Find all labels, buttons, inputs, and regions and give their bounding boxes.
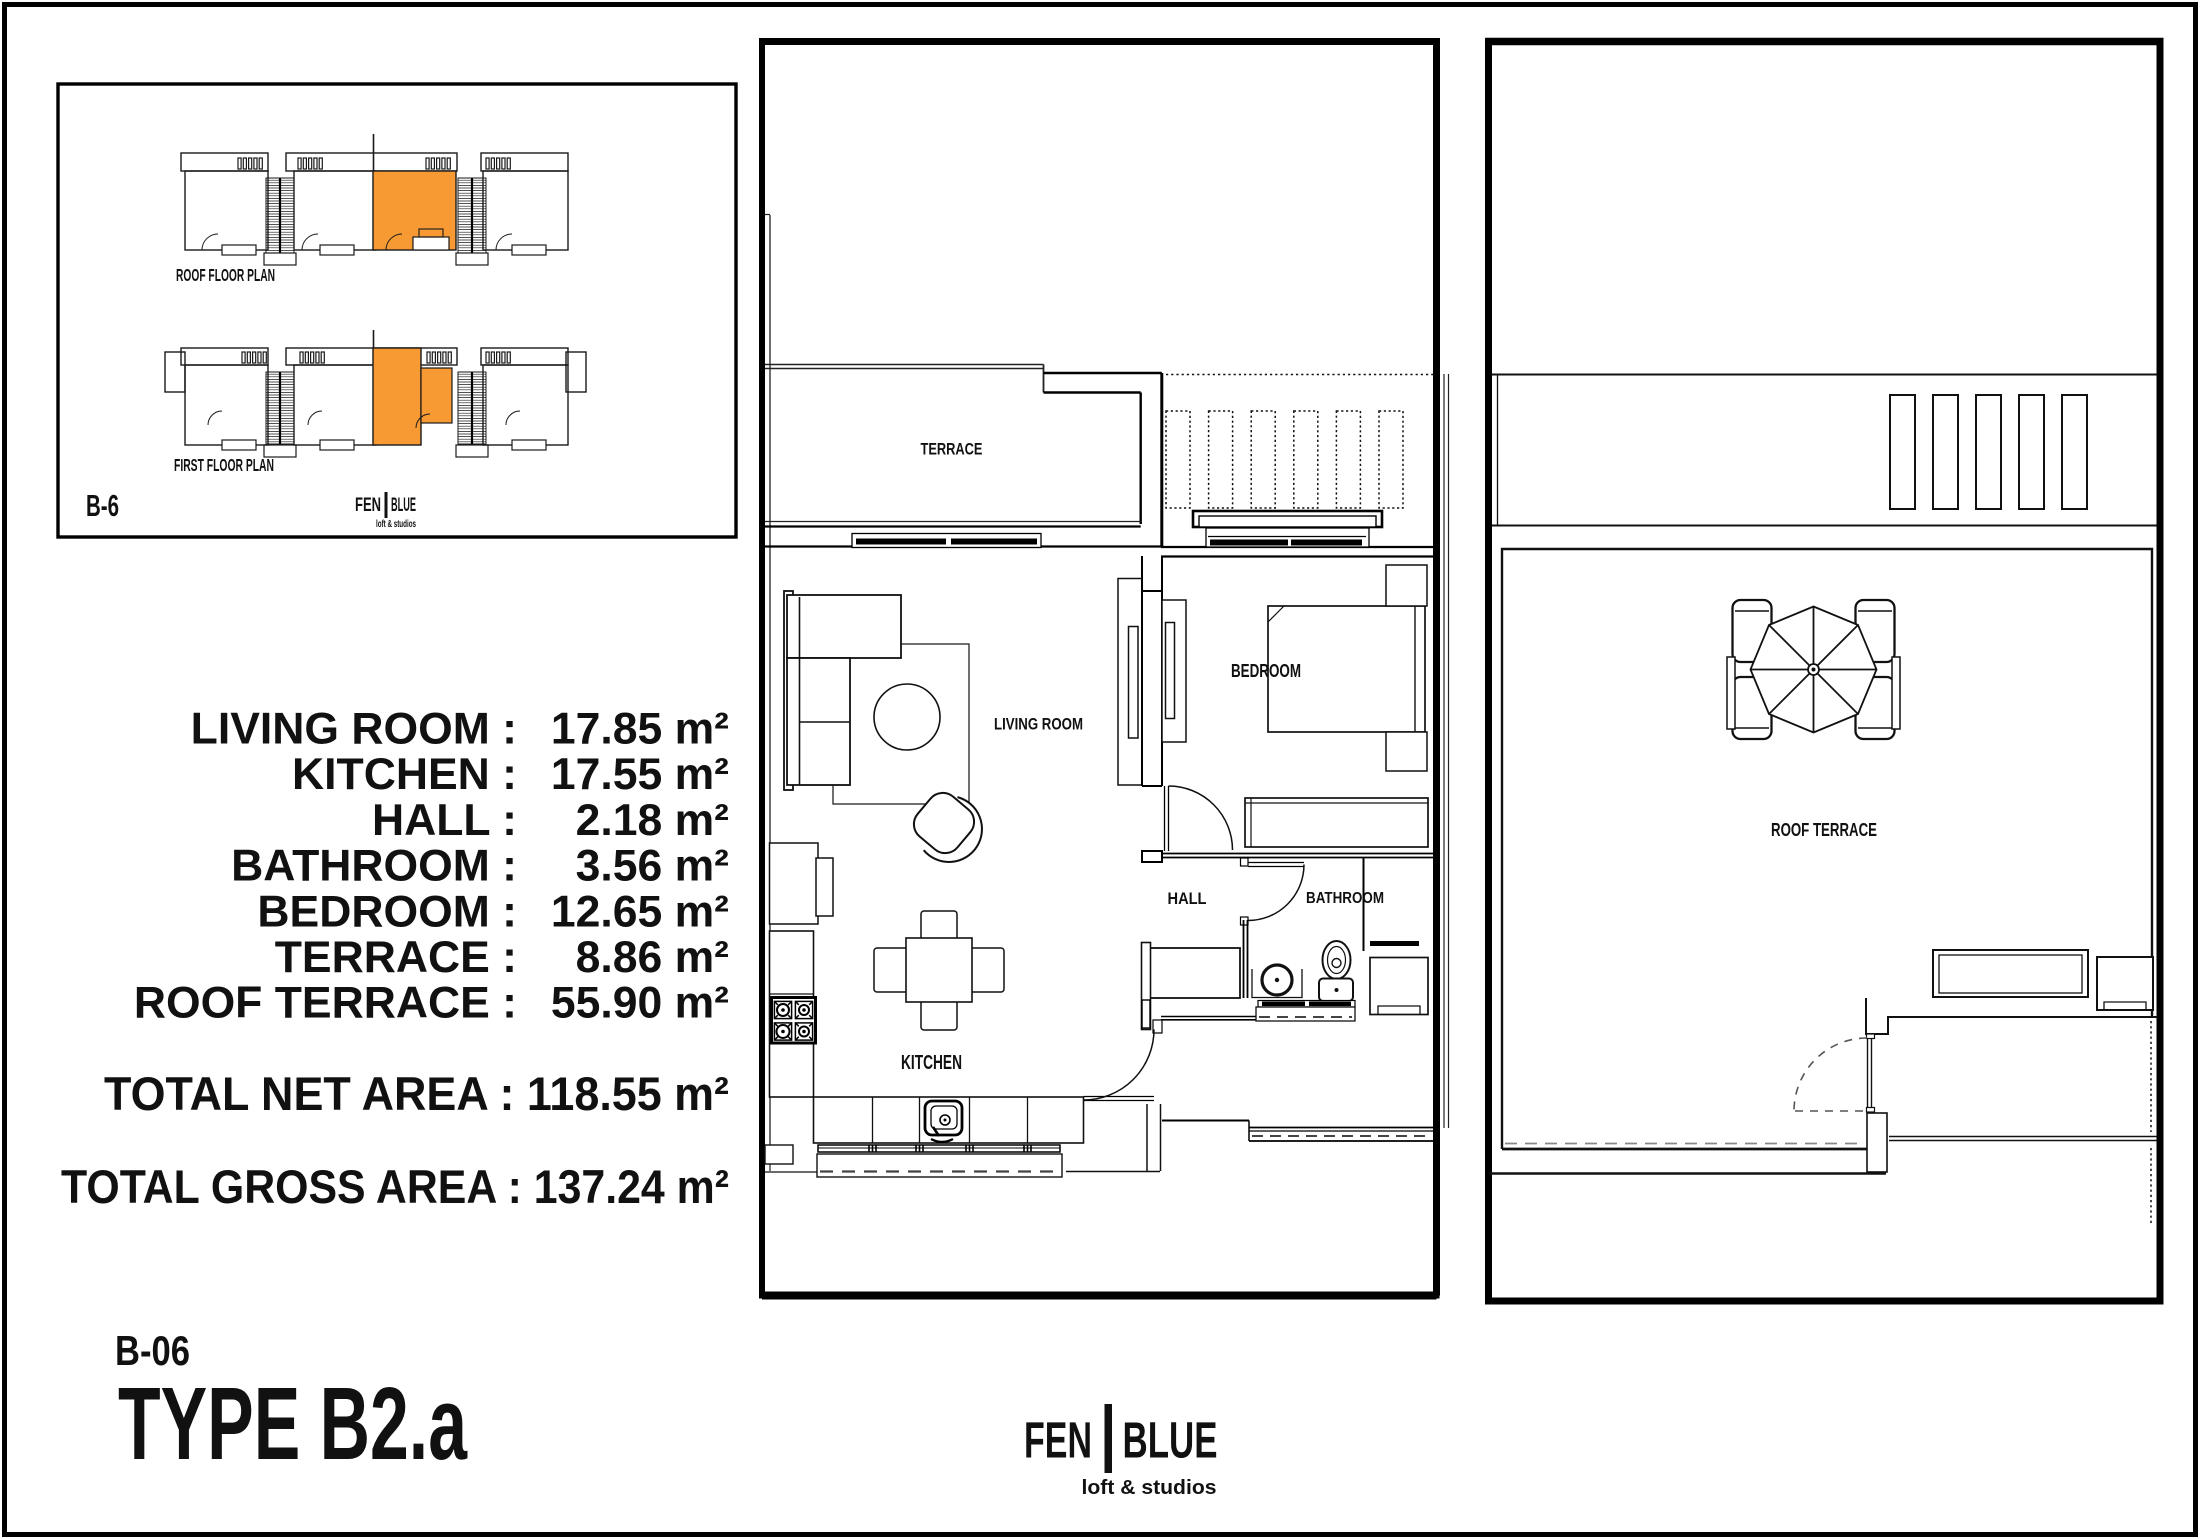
svg-text:BATHROOM: BATHROOM [1306,890,1384,907]
svg-text:3.56 m²: 3.56 m² [576,842,729,891]
svg-text:FEN: FEN [355,495,381,516]
svg-text:FIRST FLOOR PLAN: FIRST FLOOR PLAN [174,455,274,475]
svg-text:55.90 m²: 55.90 m² [551,979,729,1028]
svg-text:BEDROOM: BEDROOM [1231,660,1301,681]
svg-text:2.18 m²: 2.18 m² [576,796,729,845]
svg-text:ROOF TERRACE :: ROOF TERRACE : [134,979,517,1028]
svg-text:12.65 m²: 12.65 m² [551,887,729,936]
svg-text:BEDROOM :: BEDROOM : [257,887,517,936]
svg-text:LIVING ROOM :: LIVING ROOM : [191,705,517,754]
svg-text:BATHROOM :: BATHROOM : [231,842,517,891]
svg-text:ROOF FLOOR PLAN: ROOF FLOOR PLAN [176,265,275,285]
svg-text:loft & studios: loft & studios [1082,1476,1217,1499]
svg-text:TERRACE: TERRACE [921,441,983,459]
svg-text:17.55 m²: 17.55 m² [551,750,729,799]
svg-text:8.86 m²: 8.86 m² [576,933,729,982]
svg-text:HALL: HALL [1168,889,1207,908]
svg-text:BLUE: BLUE [391,495,416,516]
svg-text:KITCHEN :: KITCHEN : [292,750,517,799]
svg-text:KITCHEN: KITCHEN [901,1052,962,1074]
svg-text:TOTAL GROSS AREA : 137.24 m²: TOTAL GROSS AREA : 137.24 m² [61,1161,729,1214]
svg-text:TERRACE :: TERRACE : [275,933,517,982]
svg-text:17.85 m²: 17.85 m² [551,705,729,754]
svg-text:loft & studios: loft & studios [376,518,416,530]
svg-text:FEN: FEN [1024,1412,1092,1469]
svg-text:LIVING ROOM: LIVING ROOM [994,716,1083,734]
svg-text:ROOF TERRACE: ROOF TERRACE [1771,819,1877,840]
svg-text:BLUE: BLUE [1123,1412,1218,1469]
svg-text:B-6: B-6 [86,488,119,523]
svg-text:TOTAL NET AREA : 118.55 m²: TOTAL NET AREA : 118.55 m² [104,1068,729,1121]
svg-text:HALL :: HALL : [372,796,517,845]
svg-text:TYPE B2.a: TYPE B2.a [118,1366,467,1481]
